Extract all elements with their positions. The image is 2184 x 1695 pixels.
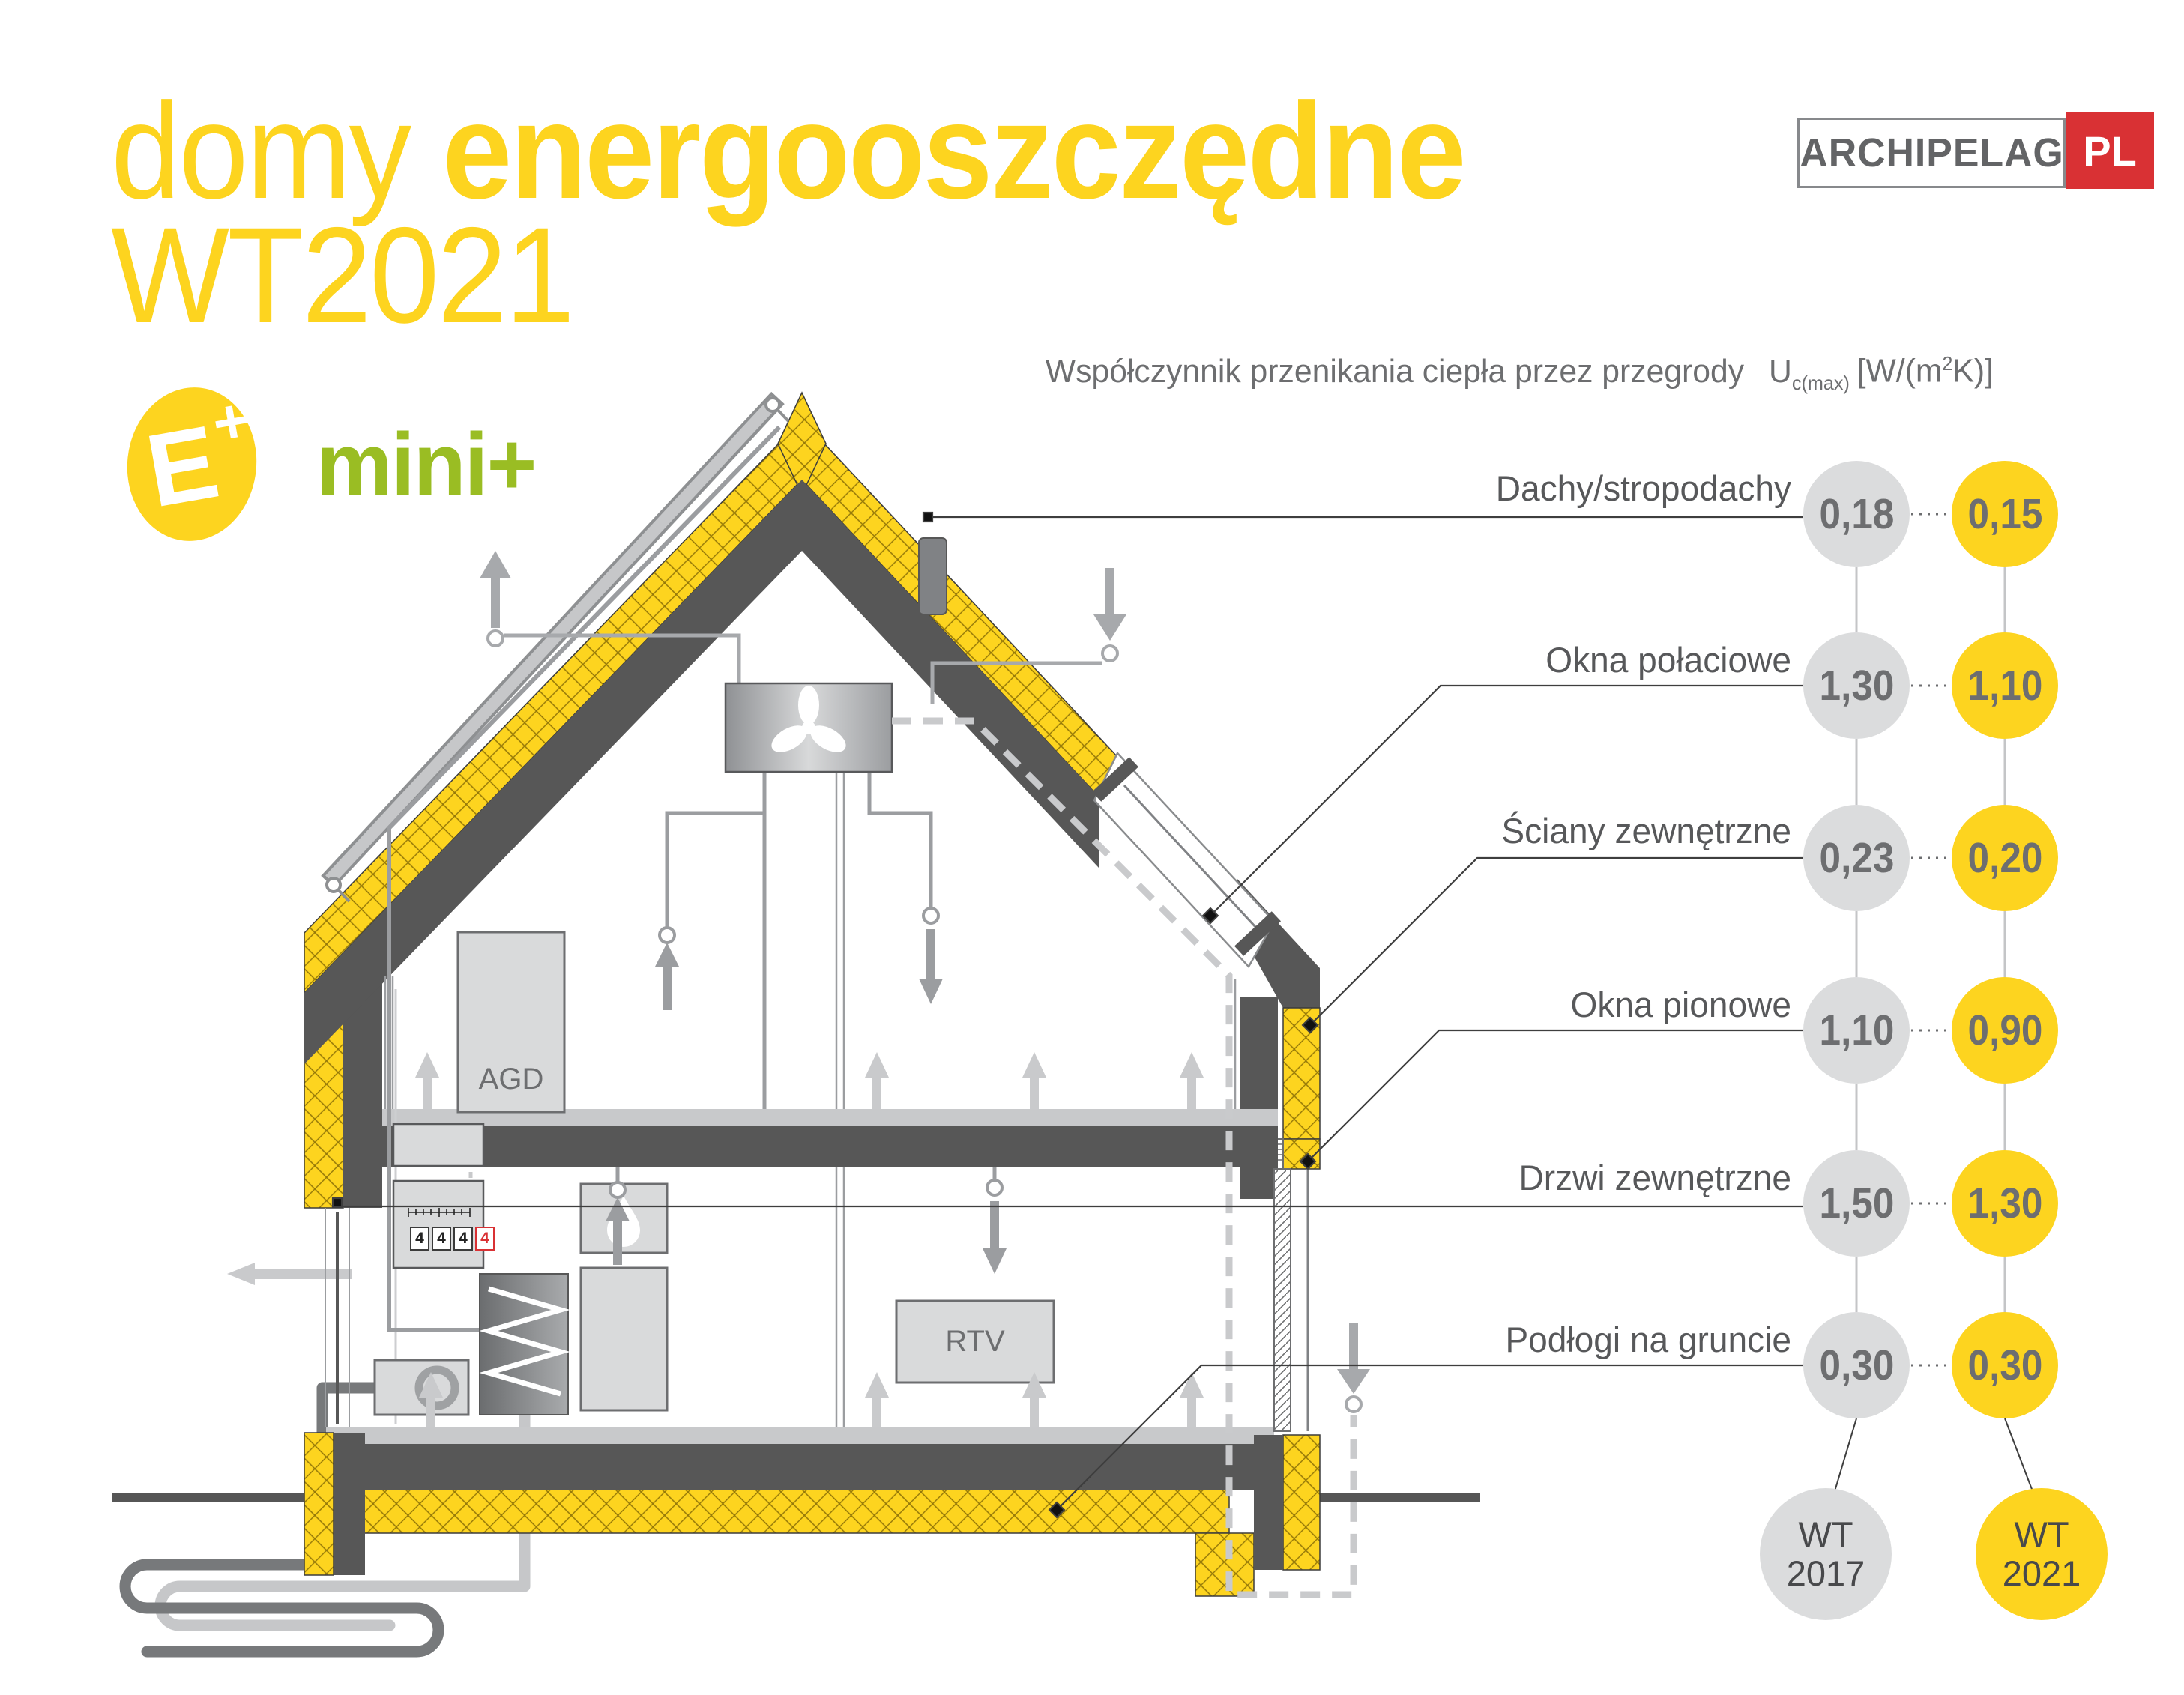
row-label-floors: Podłogi na gruncie [1204,1319,1791,1360]
archipelag-logo-text: ARCHIPELAG [1800,130,2063,176]
floor-on-ground [326,1427,1283,1596]
mini-plus-logo: mini+ [316,414,535,516]
value-wt2021-floors: 0,30 [1952,1312,2058,1418]
title-word-energooszczedne: energooszczędne [442,74,1464,227]
energy-meter [393,1181,483,1268]
storage-tank-box [581,1268,667,1410]
wall-exhaust-arrow-left [227,1263,352,1285]
table-header: Współczynnik przenikania ciepła przez pr… [996,352,1994,394]
outside-air-arrows [227,551,1370,1412]
infographic-canvas: domy energooszczędne WT2021 ARCHIPELAG P… [0,0,2184,1695]
title-line-2: WT2021 [111,213,1464,337]
wt2017-badge: WT2017 [1760,1488,1892,1620]
meter-digit: 4 [453,1227,473,1251]
row-label-walls: Ściany zewnętrzne [1204,810,1791,851]
value-wt2021-windows: 0,90 [1952,977,2058,1084]
value-wt2017-roof-windows: 1,30 [1803,632,1910,739]
u-symbol: Uc(max) [1769,353,1850,395]
mid-floor-slab [382,1109,1278,1167]
intake-arrow-down [1093,568,1126,661]
roof-duct [919,538,947,614]
meter-digit-red: 4 [475,1227,495,1251]
row-label-roofs: Dachy/stropodachy [1204,468,1791,509]
row-label-doors: Drzwi zewnętrzne [1204,1157,1791,1198]
archipelag-logo: ARCHIPELAG [1797,118,2066,188]
entrance-door [325,1208,349,1427]
ventilation-unit [726,683,892,772]
page-title: domy energooszczędne WT2021 [111,88,1464,337]
meter-digit: 4 [432,1227,451,1251]
extract-attic [655,928,679,1010]
header-text: Współczynnik przenikania ciepła przez pr… [1046,353,1744,390]
title-line-1: domy energooszczędne [111,88,1464,213]
control-box [393,1124,483,1166]
exhaust-arrow-up [480,551,511,646]
rtv-label: RTV [896,1325,1054,1359]
row-label-windows: Okna pionowe [1204,984,1791,1025]
value-wt2017-roofs: 0,18 [1803,461,1910,567]
value-wt2017-walls: 0,23 [1803,805,1910,911]
value-wt2021-walls: 0,20 [1952,805,2058,911]
value-wt2017-doors: 1,50 [1803,1150,1910,1257]
value-wt2017-floors: 0,30 [1803,1312,1910,1418]
meter-digit: 4 [410,1227,429,1251]
supply-attic [919,908,943,1004]
row-label-roof-windows: Okna połaciowe [1204,639,1791,680]
value-wt2021-doors: 1,30 [1952,1150,2058,1257]
value-wt2021-roof-windows: 1,10 [1952,632,2058,739]
archipelag-pl-text: PL [2083,127,2137,175]
vertical-window [1274,1169,1308,1431]
agd-label: AGD [458,1063,564,1096]
value-wt2017-windows: 1,10 [1803,977,1910,1084]
archipelag-pl-badge: PL [2066,112,2154,189]
supply-ground [983,1180,1007,1274]
unit-text: [W/(m2K)] [1857,352,1994,390]
energy-meter-digits: 4 4 4 4 [410,1227,495,1251]
wt2021-badge: WT2021 [1976,1488,2108,1620]
value-wt2021-roofs: 0,15 [1952,461,2058,567]
